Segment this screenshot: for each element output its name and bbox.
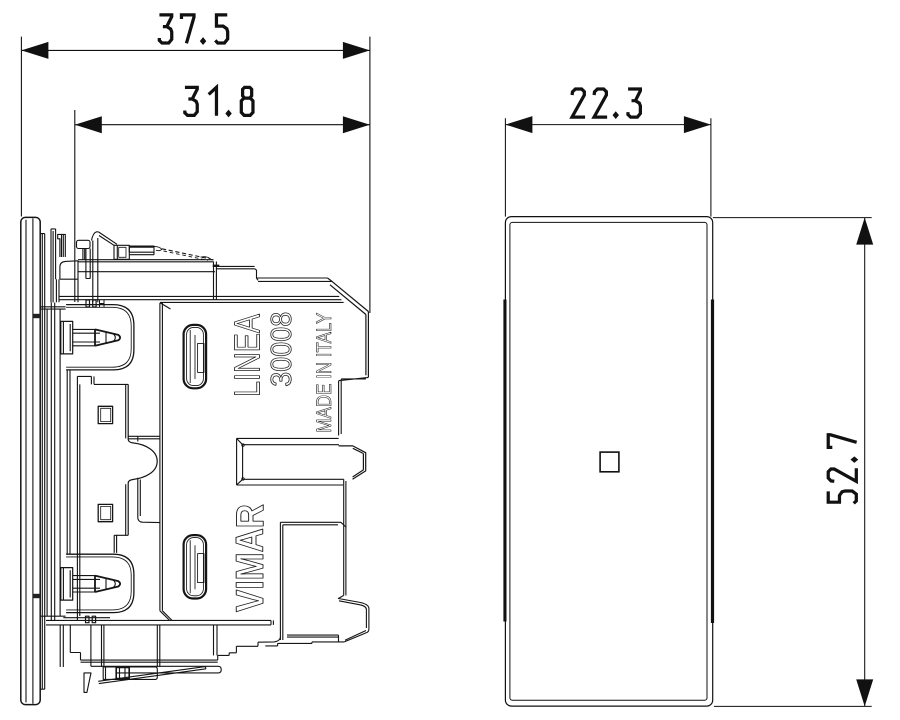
svg-text:VIMAR: VIMAR <box>229 504 272 612</box>
svg-text:30008: 30008 <box>266 312 298 387</box>
svg-text:MADE IN ITALY: MADE IN ITALY <box>312 313 336 433</box>
svg-text:LINEA: LINEA <box>227 314 268 397</box>
